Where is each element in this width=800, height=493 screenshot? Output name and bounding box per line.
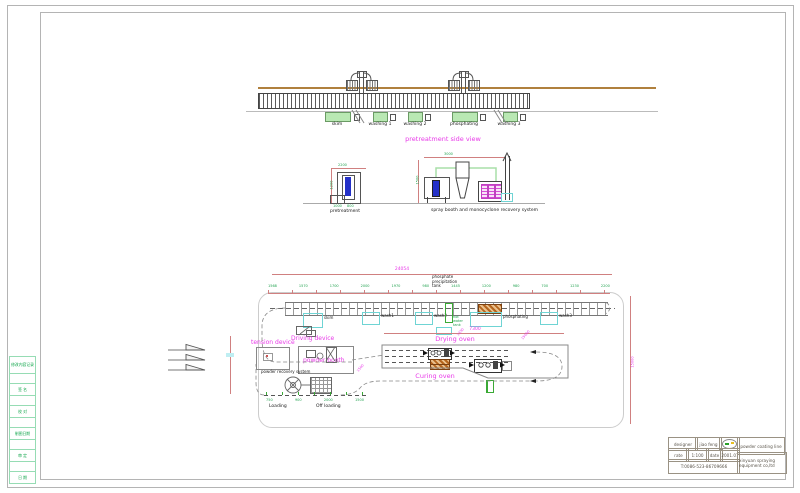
phone-cell: T:0086-523-86709666 — [668, 459, 740, 474]
date-label: date — [710, 453, 719, 458]
logo-green-mark — [725, 443, 729, 445]
booth-details — [300, 327, 335, 361]
cyclone — [456, 162, 469, 198]
recovery-fan-icon — [285, 377, 310, 393]
company-name: xinyuan spraying equipment co,ltd — [739, 458, 785, 468]
designer-value: jiao feng — [699, 442, 717, 447]
logo-yellow-mark — [731, 442, 734, 444]
scale-value: 1:100 — [691, 453, 703, 458]
linework-layer — [0, 0, 800, 493]
company-cell: xinyuan spraying equipment co,ltd — [737, 452, 787, 474]
stack-arrow-icon — [503, 153, 511, 161]
burner-details — [431, 351, 490, 367]
step-marks — [352, 110, 506, 123]
scale-label: rate — [674, 453, 683, 458]
plan-conveyor-path — [256, 303, 610, 396]
designer-label: designer — [674, 442, 692, 447]
oven-outline — [382, 345, 568, 378]
product-name: powder coating line — [740, 444, 781, 449]
conveyor-direction-arrows — [168, 345, 205, 371]
fan-duct-elbows — [351, 73, 473, 80]
phone-number: T:0086-523-86709666 — [681, 464, 728, 469]
